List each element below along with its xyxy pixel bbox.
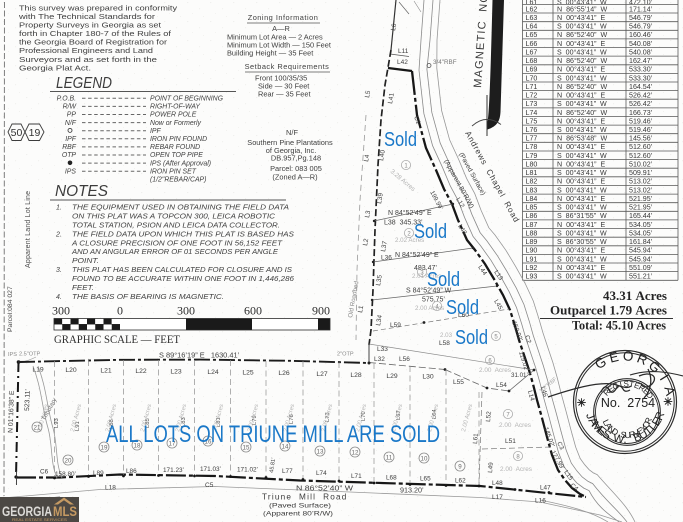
svg-text:N 86°55’14” W: N 86°55’14” W [557,5,607,13]
svg-text:GEORGIA: GEORGIA [2,504,52,519]
svg-text:158.80’: 158.80’ [55,471,77,478]
svg-text:2.: 2. [55,231,62,238]
svg-text:DB.957,Pg.148: DB.957,Pg.148 [271,154,321,163]
svg-text:512.60’: 512.60’ [629,152,653,160]
svg-text:No. 2754: No. 2754 [601,396,655,410]
svg-text:Total: 45.10 Acres: Total: 45.10 Acres [572,318,666,333]
svg-text:L55: L55 [453,379,464,386]
svg-text:N 86°52’40” W: N 86°52’40” W [296,484,353,493]
svg-text:534.05’: 534.05’ [629,229,653,237]
svg-text:TOTAL STATION, PSION AND LEICA: TOTAL STATION, PSION AND LEICA DATA COLL… [72,222,280,229]
svg-text:162.47’: 162.47’ [629,57,653,65]
svg-text:L93: L93 [54,418,60,428]
svg-text:Sold: Sold [446,297,479,319]
svg-text:3.: 3. [56,267,62,274]
svg-text:N/F: N/F [65,120,77,127]
svg-text:540.08’: 540.08’ [629,48,653,56]
svg-text:L73: L73 [526,100,538,108]
svg-text:L74: L74 [316,470,327,477]
svg-text:S 00°43’41” W: S 00°43’41” W [557,273,607,281]
svg-text:L90: L90 [526,247,538,255]
svg-text:C6: C6 [40,469,49,476]
svg-text:P.O.B.: P.O.B. [57,96,76,103]
svg-text:513.02’: 513.02’ [629,178,653,186]
svg-text:171.02’: 171.02’ [237,467,259,474]
svg-text:L58: L58 [439,340,450,347]
svg-text:L47: L47 [540,485,551,492]
svg-text:2.5"OTP: 2.5"OTP [19,352,41,358]
svg-text:2.00 Acres: 2.00 Acres [500,466,532,473]
svg-text:L76: L76 [526,126,538,134]
svg-text:L52: L52 [485,411,493,423]
svg-text:MLS: MLS [53,504,77,519]
svg-text:Setback Requirements: Setback Requirements [245,62,330,71]
svg-text:3/4"RBF: 3/4"RBF [433,59,457,66]
svg-text:L62: L62 [526,5,538,13]
svg-text:0: 0 [117,304,123,318]
svg-text:L68: L68 [386,475,397,482]
svg-text:L84: L84 [526,195,538,203]
svg-text:REBAR FOUND: REBAR FOUND [150,144,200,151]
svg-text:L32: L32 [374,356,385,363]
svg-text:POINT.: POINT. [72,258,99,265]
svg-text:S 00°43’41” W: S 00°43’41” W [557,152,607,160]
svg-text:IRON PIN SET: IRON PIN SET [150,168,197,175]
svg-text:L56: L56 [399,356,410,363]
svg-text:19: 19 [29,127,41,139]
svg-text:L79: L79 [526,152,538,160]
svg-text:546.79’: 546.79’ [629,23,653,31]
svg-text:L23: L23 [170,369,182,376]
svg-text:S 89°16’19” E 1630.41’: S 89°16’19” E 1630.41’ [159,351,240,360]
svg-text:N 00°43’41” E: N 00°43’41” E [557,92,605,100]
svg-text:N 86°52’40” W: N 86°52’40” W [557,109,607,117]
svg-text:L85: L85 [526,204,538,212]
svg-text:L51: L51 [505,438,516,445]
svg-text:N 86°53’48” W: N 86°53’48” W [557,135,607,143]
svg-text:164.54’: 164.54’ [629,83,653,91]
svg-text:166.73’: 166.73’ [629,109,653,117]
svg-text:FOUND TO BE ACCURATE WITHIN ON: FOUND TO BE ACCURATE WITHIN ONE FOOT IN … [72,276,294,283]
svg-text:545.94’: 545.94’ [629,247,653,255]
svg-text:551.09’: 551.09’ [629,264,653,272]
svg-text:S 00°43’41” W: S 00°43’41” W [557,48,607,56]
svg-text:512.60’: 512.60’ [629,143,653,151]
svg-text:L72: L72 [526,92,538,100]
svg-text:145.56’: 145.56’ [629,135,653,143]
svg-text:L65: L65 [526,31,538,39]
svg-text:L77: L77 [526,135,538,143]
svg-text:N 00°43’41” E: N 00°43’41” E [557,66,605,74]
svg-text:L91: L91 [526,255,538,263]
svg-text:L67: L67 [526,48,538,56]
svg-text:(Paved Surface): (Paved Surface) [269,503,331,510]
svg-text:L29: L29 [386,373,398,380]
svg-text:S 00°43’41” W: S 00°43’41” W [557,126,607,134]
svg-text:13: 13 [317,448,324,455]
svg-text:Sold: Sold [414,221,447,243]
svg-text:N 00°43’41” E: N 00°43’41” E [557,117,605,125]
svg-text:L24: L24 [207,369,219,376]
svg-text:L81: L81 [526,169,538,177]
svg-text:2"OTP: 2"OTP [337,352,354,358]
svg-text:N 00°43’41” E: N 00°43’41” E [557,161,605,169]
svg-text:L80: L80 [526,161,538,169]
svg-text:519.46’: 519.46’ [629,117,653,125]
svg-text:L74: L74 [526,109,538,117]
svg-text:RBF: RBF [62,144,77,151]
svg-text:L66: L66 [526,40,538,48]
svg-text:NOTES: NOTES [55,183,109,200]
svg-text:REAL ESTATE SERVICES: REAL ESTATE SERVICES [12,518,68,522]
svg-text:519.46’: 519.46’ [629,126,653,134]
svg-text:Building Height — 35 Feet: Building Height — 35 Feet [227,49,313,58]
svg-text:N 00°43’41” E: N 00°43’41” E [557,14,605,22]
svg-text:L92: L92 [526,264,538,272]
svg-text:S 00°43’41” W: S 00°43’41” W [557,255,607,263]
svg-text:Outparcel 1.79 Acres: Outparcel 1.79 Acres [550,303,667,318]
svg-text:OPEN TOP PIPE: OPEN TOP PIPE [150,152,203,159]
svg-text:533.30’: 533.30’ [629,66,653,74]
svg-text:4.: 4. [56,294,62,301]
svg-text:L28: L28 [350,372,362,379]
svg-text:S 86°31’55” W: S 86°31’55” W [557,212,607,220]
svg-text:IPS (After Approval): IPS (After Approval) [150,160,211,167]
svg-text:9: 9 [458,463,462,470]
svg-text:L68: L68 [526,57,538,65]
svg-text:L77: L77 [282,468,293,475]
svg-text:171.03’: 171.03’ [200,466,222,473]
svg-text:L54: L54 [496,382,507,389]
svg-text:600: 600 [244,304,262,318]
svg-text:N 84°52’49” E: N 84°52’49” E [395,251,439,259]
svg-text:THE BASIS OF BEARING IS MAGNET: THE BASIS OF BEARING IS MAGNETIC. [72,294,224,301]
svg-text:N 00°43’41” E: N 00°43’41” E [557,221,605,229]
svg-text:S 00°43’41” W: S 00°43’41” W [557,169,607,177]
svg-text:L71: L71 [526,83,538,91]
svg-text:S 00°43’41” W: S 00°43’41” W [557,100,607,108]
svg-text:GRAPHIC SCALE — FEET: GRAPHIC SCALE — FEET [54,334,180,346]
svg-text:21: 21 [34,424,41,431]
svg-text:545.94’: 545.94’ [629,255,653,263]
svg-text:N 00°43’41” E: N 00°43’41” E [557,178,605,186]
svg-text:171.23’: 171.23’ [163,467,185,474]
svg-text:2.00 Acres: 2.00 Acres [499,422,531,429]
svg-text:L65: L65 [420,476,431,483]
svg-text:N 86°52’40” W: N 86°52’40” W [557,83,607,91]
svg-text:(Apparent 80’R/W): (Apparent 80’R/W) [263,511,333,518]
svg-text:161.84’: 161.84’ [629,238,653,246]
svg-text:Georgia Plat Act.: Georgia Plat Act. [19,63,91,72]
svg-text:165.44’: 165.44’ [629,212,653,220]
svg-text:546.79’: 546.79’ [629,14,653,22]
svg-text:2.00 Acres: 2.00 Acres [415,305,444,312]
svg-text:L22: L22 [135,368,147,375]
svg-text:THE EQUIPMENT USED IN OBTAININ: THE EQUIPMENT USED IN OBTAINING THE FIEL… [72,205,289,212]
svg-text:FEET.: FEET. [72,285,94,292]
svg-text:509.91’: 509.91’ [629,169,653,177]
svg-text:L63: L63 [526,14,538,22]
svg-text:N 00°43’41” E: N 00°43’41” E [557,143,605,151]
svg-text:(1/2"REBAR/CAP): (1/2"REBAR/CAP) [150,177,206,184]
svg-text:(Zoned A—R): (Zoned A—R) [272,173,317,182]
svg-text:Parcel:084 027: Parcel:084 027 [7,286,14,332]
svg-text:913.20’: 913.20’ [400,486,424,495]
svg-text:L21: L21 [100,368,112,375]
svg-text:Now or Formerly: Now or Formerly [150,120,201,127]
svg-text:N 86°52’40” W: N 86°52’40” W [557,57,607,65]
svg-text:IPF: IPF [150,128,162,135]
svg-text:526.42’: 526.42’ [629,92,653,100]
svg-text:L18: L18 [105,485,116,492]
svg-text:O: O [622,348,634,364]
svg-text:L36: L36 [381,255,392,262]
svg-text:1.: 1. [56,205,62,212]
svg-text:540.08’: 540.08’ [629,40,653,48]
svg-text:523.11’: 523.11’ [24,389,32,412]
svg-text:L27: L27 [316,371,328,378]
svg-text:L86: L86 [126,468,137,475]
svg-text:171.14’: 171.14’ [629,5,653,13]
svg-text:L89: L89 [526,238,538,246]
svg-text:N 86°52’40” W: N 86°52’40” W [557,31,607,39]
svg-text:Zoning Information: Zoning Information [248,13,319,22]
svg-text:LEGEND: LEGEND [56,75,112,92]
svg-text:N 84°52’49” E: N 84°52’49” E [388,209,432,217]
svg-text:534.05’: 534.05’ [629,221,653,229]
svg-text:L26: L26 [278,370,290,377]
svg-text:S 00°43’41” W: S 00°43’41” W [557,74,607,82]
svg-text:521.95’: 521.95’ [629,204,653,212]
svg-text:521.95’: 521.95’ [629,195,653,203]
svg-text:L78: L78 [526,143,538,151]
svg-text:THE FIELD DATA UPON WHICH THIS: THE FIELD DATA UPON WHICH THIS PLAT IS B… [72,231,294,238]
svg-text:L86: L86 [526,212,538,220]
svg-text:ALL LOTS ON TRIUNE MILL ARE SO: ALL LOTS ON TRIUNE MILL ARE SOLD [106,421,440,448]
svg-text:Rear — 35 Feet: Rear — 35 Feet [258,90,311,99]
svg-text:2.00 Acres: 2.00 Acres [479,367,511,374]
svg-text:L71: L71 [351,473,362,480]
svg-text:RIGHT-OF-WAY: RIGHT-OF-WAY [150,104,201,111]
svg-text:L93: L93 [526,273,538,281]
svg-text:20: 20 [65,457,72,464]
svg-text:L49: L49 [487,462,495,474]
svg-text:S 00°43’41” W: S 00°43’41” W [557,204,607,212]
svg-text:510.02’: 510.02’ [629,161,653,169]
svg-text:IPS: IPS [65,168,77,175]
svg-text:Sold: Sold [455,327,488,349]
svg-text:Sold: Sold [384,129,417,151]
svg-text:2.03: 2.03 [440,332,453,339]
svg-text:Apparent Land Lot Line: Apparent Land Lot Line [25,191,32,268]
svg-text:IPF: IPF [65,136,77,143]
svg-text:L75: L75 [526,117,538,125]
svg-text:43.31 Acres: 43.31 Acres [603,288,667,303]
svg-text:L83: L83 [526,186,538,194]
svg-text:L11: L11 [398,48,409,55]
svg-text:L42: L42 [397,59,408,66]
svg-text:11: 11 [386,454,393,461]
svg-text:N/F: N/F [286,128,298,137]
svg-text:50: 50 [11,127,23,139]
svg-text:S 00°43’41” W: S 00°43’41” W [557,186,607,194]
svg-text:526.42’: 526.42’ [629,100,653,108]
svg-text:L69: L69 [526,66,538,74]
svg-text:551.21’: 551.21’ [629,273,653,281]
svg-text:N 00°43’41” E: N 00°43’41” E [557,264,605,272]
svg-text:L70: L70 [526,74,538,82]
svg-text:L16: L16 [535,498,546,505]
svg-text:L62: L62 [455,478,466,485]
svg-text:PP: PP [67,112,77,119]
svg-text:C5: C5 [205,482,214,489]
svg-text:160.46’: 160.46’ [629,31,653,39]
svg-text:L82: L82 [526,178,538,186]
svg-text:N 00°43’41” E: N 00°43’41” E [557,247,605,255]
svg-text:10: 10 [421,455,428,462]
svg-text:300: 300 [52,304,70,318]
svg-text:POWER POLE: POWER POLE [150,112,197,119]
svg-text:L87: L87 [526,221,538,229]
svg-text:L25: L25 [242,370,254,377]
svg-text:S 00°43’41” W: S 00°43’41” W [557,23,607,31]
svg-text:300: 300 [177,304,195,318]
svg-text:IRON PIN FOUND: IRON PIN FOUND [150,136,207,143]
svg-text:533.30’: 533.30’ [629,74,653,82]
svg-text:S 86°30’55” W: S 86°30’55” W [557,238,607,246]
svg-text:Sold: Sold [427,269,460,291]
svg-text:ON THIS PLAT WAS A TOPCON 300,: ON THIS PLAT WAS A TOPCON 300, LEICA ROB… [72,213,276,220]
svg-text:L30: L30 [422,374,434,381]
svg-text:POINT OF BEGINNING: POINT OF BEGINNING [150,96,224,103]
svg-text:N 01°16’38” E: N 01°16’38” E [7,390,16,433]
svg-text:L88: L88 [526,229,538,237]
svg-text:L48: L48 [492,480,503,487]
svg-text:A CLOSURE PRECISION OF ONE FOO: A CLOSURE PRECISION OF ONE FOOT IN 56,15… [71,240,283,247]
svg-text:L64: L64 [526,23,538,31]
svg-text:THIS PLAT HAS BEEN CALCULATED: THIS PLAT HAS BEEN CALCULATED FOR CLOSUR… [72,267,292,274]
svg-text:L59: L59 [390,322,401,329]
svg-text:L89: L89 [93,470,104,477]
svg-text:IPS: IPS [8,352,17,358]
svg-text:R/W: R/W [63,104,78,111]
svg-text:S 00°43’41” W: S 00°43’41” W [557,229,607,237]
svg-text:N 00°43’41” E: N 00°43’41” E [557,40,605,48]
svg-text:513.02’: 513.02’ [629,186,653,194]
svg-text:Triune Mill Road: Triune Mill Road [262,493,347,502]
svg-text:AND AN ANGULAR ERROR OF 01 SEC: AND AN ANGULAR ERROR OF 01 SECONDS PER A… [71,249,278,256]
svg-text:L17: L17 [492,494,503,501]
svg-text:31.01’: 31.01’ [511,372,528,379]
svg-text:L20: L20 [65,367,77,374]
svg-text:900: 900 [312,304,330,318]
svg-text:12: 12 [352,449,359,456]
svg-text:OTP: OTP [62,152,77,159]
svg-text:N 00°43’41” E: N 00°43’41” E [557,195,605,203]
